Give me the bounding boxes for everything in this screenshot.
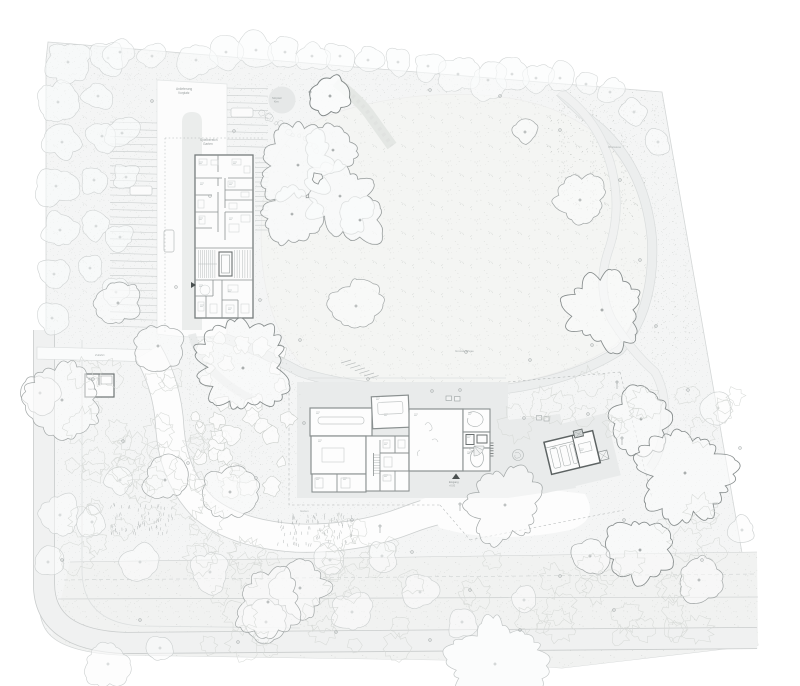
svg-text:Kies: Kies: [274, 101, 279, 104]
svg-text:+0.00: +0.00: [449, 485, 456, 488]
svg-text:Garten: Garten: [203, 142, 213, 146]
svg-text:Vorplatz: Vorplatz: [178, 91, 190, 95]
svg-text:Sitzplatz: Sitzplatz: [272, 96, 283, 100]
svg-text:Garten: Garten: [300, 509, 309, 513]
svg-text:Grosse Wiese: Grosse Wiese: [455, 349, 474, 353]
svg-text:Zufahrt: Zufahrt: [95, 353, 105, 357]
svg-text:Eingang: Eingang: [449, 480, 459, 484]
svg-text:Obstwiese: Obstwiese: [608, 145, 622, 149]
